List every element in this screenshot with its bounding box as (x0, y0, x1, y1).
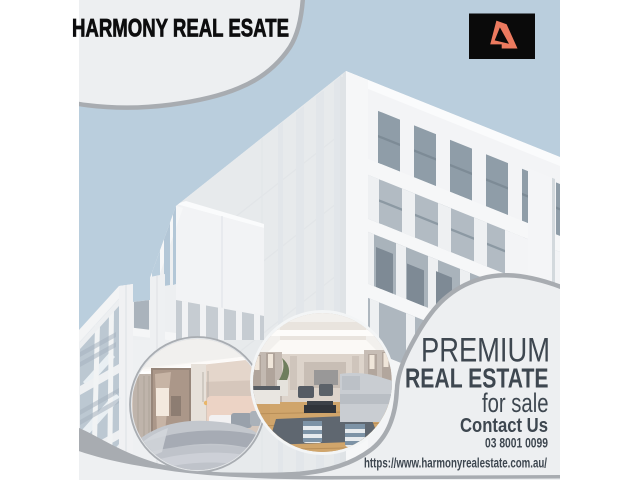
svg-text:03 8001 0099: 03 8001 0099 (485, 436, 548, 451)
svg-text:Contact Us: Contact Us (460, 414, 548, 437)
svg-text:https://www.harmonyrealestate.: https://www.harmonyrealestate.com.au/ (364, 456, 547, 471)
svg-text:HARMONY REAL ESATE: HARMONY REAL ESATE (72, 15, 289, 43)
